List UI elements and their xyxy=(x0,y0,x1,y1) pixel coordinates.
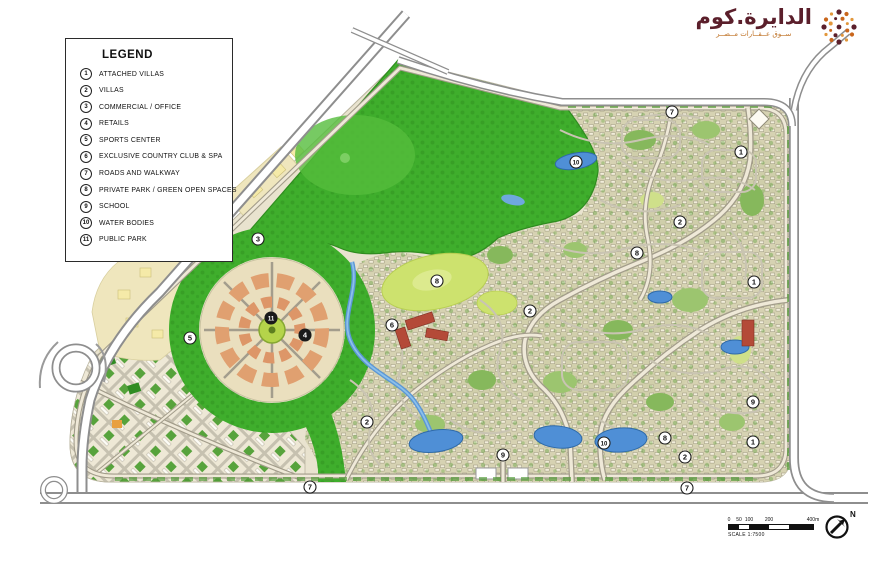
site-logo[interactable]: الدايرة.كوم ســوق عــقــارات مــصــر xyxy=(695,6,860,48)
legend-item: 3COMMERCIAL / OFFICE xyxy=(80,101,222,113)
dotted-circle-logo-icon xyxy=(818,6,860,48)
svg-text:1: 1 xyxy=(751,438,755,447)
svg-text:5: 5 xyxy=(188,334,192,343)
legend-item: 7ROADS AND WALKWAY xyxy=(80,168,222,180)
svg-text:1: 1 xyxy=(752,278,756,287)
svg-text:2: 2 xyxy=(678,218,682,227)
legend-item-number: 7 xyxy=(80,168,92,180)
legend-item: 1ATTACHED VILLAS xyxy=(80,68,222,80)
legend-item: 2VILLAS xyxy=(80,85,222,97)
svg-text:2: 2 xyxy=(683,453,687,462)
masterplan-page: 7110238812116459281012977 LEGEND 1ATTACH… xyxy=(0,0,870,580)
scale-tick: 400m xyxy=(807,517,820,523)
legend-item-label: COMMERCIAL / OFFICE xyxy=(99,104,181,111)
scale-tick: 200 xyxy=(765,517,773,523)
svg-text:8: 8 xyxy=(435,277,439,286)
central-circle-district xyxy=(200,258,344,402)
svg-text:9: 9 xyxy=(501,451,505,460)
legend-item: 4RETAILS xyxy=(80,118,222,130)
legend-title: LEGEND xyxy=(102,49,222,61)
legend-item: 9SCHOOL xyxy=(80,201,222,213)
svg-text:7: 7 xyxy=(670,108,674,117)
svg-text:9: 9 xyxy=(751,398,755,407)
legend-item-label: ROADS AND WALKWAY xyxy=(99,170,180,177)
legend-item: 10WATER BODIES xyxy=(80,217,222,229)
legend-item-number: 1 xyxy=(80,68,92,80)
svg-text:8: 8 xyxy=(663,434,667,443)
legend-item-label: SPORTS CENTER xyxy=(99,137,161,144)
svg-text:7: 7 xyxy=(685,484,689,493)
svg-text:6: 6 xyxy=(390,321,394,330)
scale-tick: 50 xyxy=(736,517,742,523)
svg-text:10: 10 xyxy=(601,442,608,448)
legend-item-label: EXCLUSIVE COUNTRY CLUB & SPA xyxy=(99,153,222,160)
svg-text:1: 1 xyxy=(739,148,743,157)
scale-tick: 100 xyxy=(745,517,753,523)
legend-items: 1ATTACHED VILLAS2VILLAS3COMMERCIAL / OFF… xyxy=(80,68,222,246)
legend-item-number: 10 xyxy=(80,217,92,229)
legend-item-label: VILLAS xyxy=(99,87,124,94)
legend-item-label: PUBLIC PARK xyxy=(99,236,147,243)
legend-item-number: 8 xyxy=(80,184,92,196)
legend-item-label: WATER BODIES xyxy=(99,220,154,227)
north-label: N xyxy=(850,510,856,519)
legend-box: LEGEND 1ATTACHED VILLAS2VILLAS3COMMERCIA… xyxy=(65,38,233,262)
svg-text:3: 3 xyxy=(256,235,260,244)
legend-item-label: ATTACHED VILLAS xyxy=(99,71,164,78)
legend-item-number: 4 xyxy=(80,118,92,130)
scale-caption: SCALE 1:7500 xyxy=(728,532,765,538)
svg-text:11: 11 xyxy=(268,317,275,323)
legend-item-label: PRIVATE PARK / GREEN OPEN SPACES xyxy=(99,187,237,194)
legend-item-number: 9 xyxy=(80,201,92,213)
svg-text:10: 10 xyxy=(573,161,580,167)
logo-title: الدايرة.كوم xyxy=(695,6,812,28)
svg-text:8: 8 xyxy=(635,249,639,258)
retail-strip xyxy=(742,320,754,346)
legend-item-number: 3 xyxy=(80,101,92,113)
legend-item-label: SCHOOL xyxy=(99,203,130,210)
scale-tick: 0 xyxy=(728,517,731,523)
legend-item-number: 2 xyxy=(80,85,92,97)
legend-item: 6EXCLUSIVE COUNTRY CLUB & SPA xyxy=(80,151,222,163)
svg-text:2: 2 xyxy=(365,418,369,427)
legend-item-number: 5 xyxy=(80,134,92,146)
legend-item-label: RETAILS xyxy=(99,120,129,127)
legend-item: 8PRIVATE PARK / GREEN OPEN SPACES xyxy=(80,184,222,196)
logo-text: الدايرة.كوم ســوق عــقــارات مــصــر xyxy=(695,6,812,38)
legend-item: 11PUBLIC PARK xyxy=(80,234,222,246)
logo-tagline: ســوق عــقــارات مــصــر xyxy=(695,30,812,38)
legend-item-number: 11 xyxy=(80,234,92,246)
legend-item: 5SPORTS CENTER xyxy=(80,134,222,146)
scale-bar: 050100200400m xyxy=(728,524,814,530)
legend-item-number: 6 xyxy=(80,151,92,163)
north-arrow: N xyxy=(824,514,850,545)
svg-text:7: 7 xyxy=(308,483,312,492)
svg-text:2: 2 xyxy=(528,307,532,316)
map-footer: 050100200400m SCALE 1:7500 N xyxy=(728,512,860,560)
